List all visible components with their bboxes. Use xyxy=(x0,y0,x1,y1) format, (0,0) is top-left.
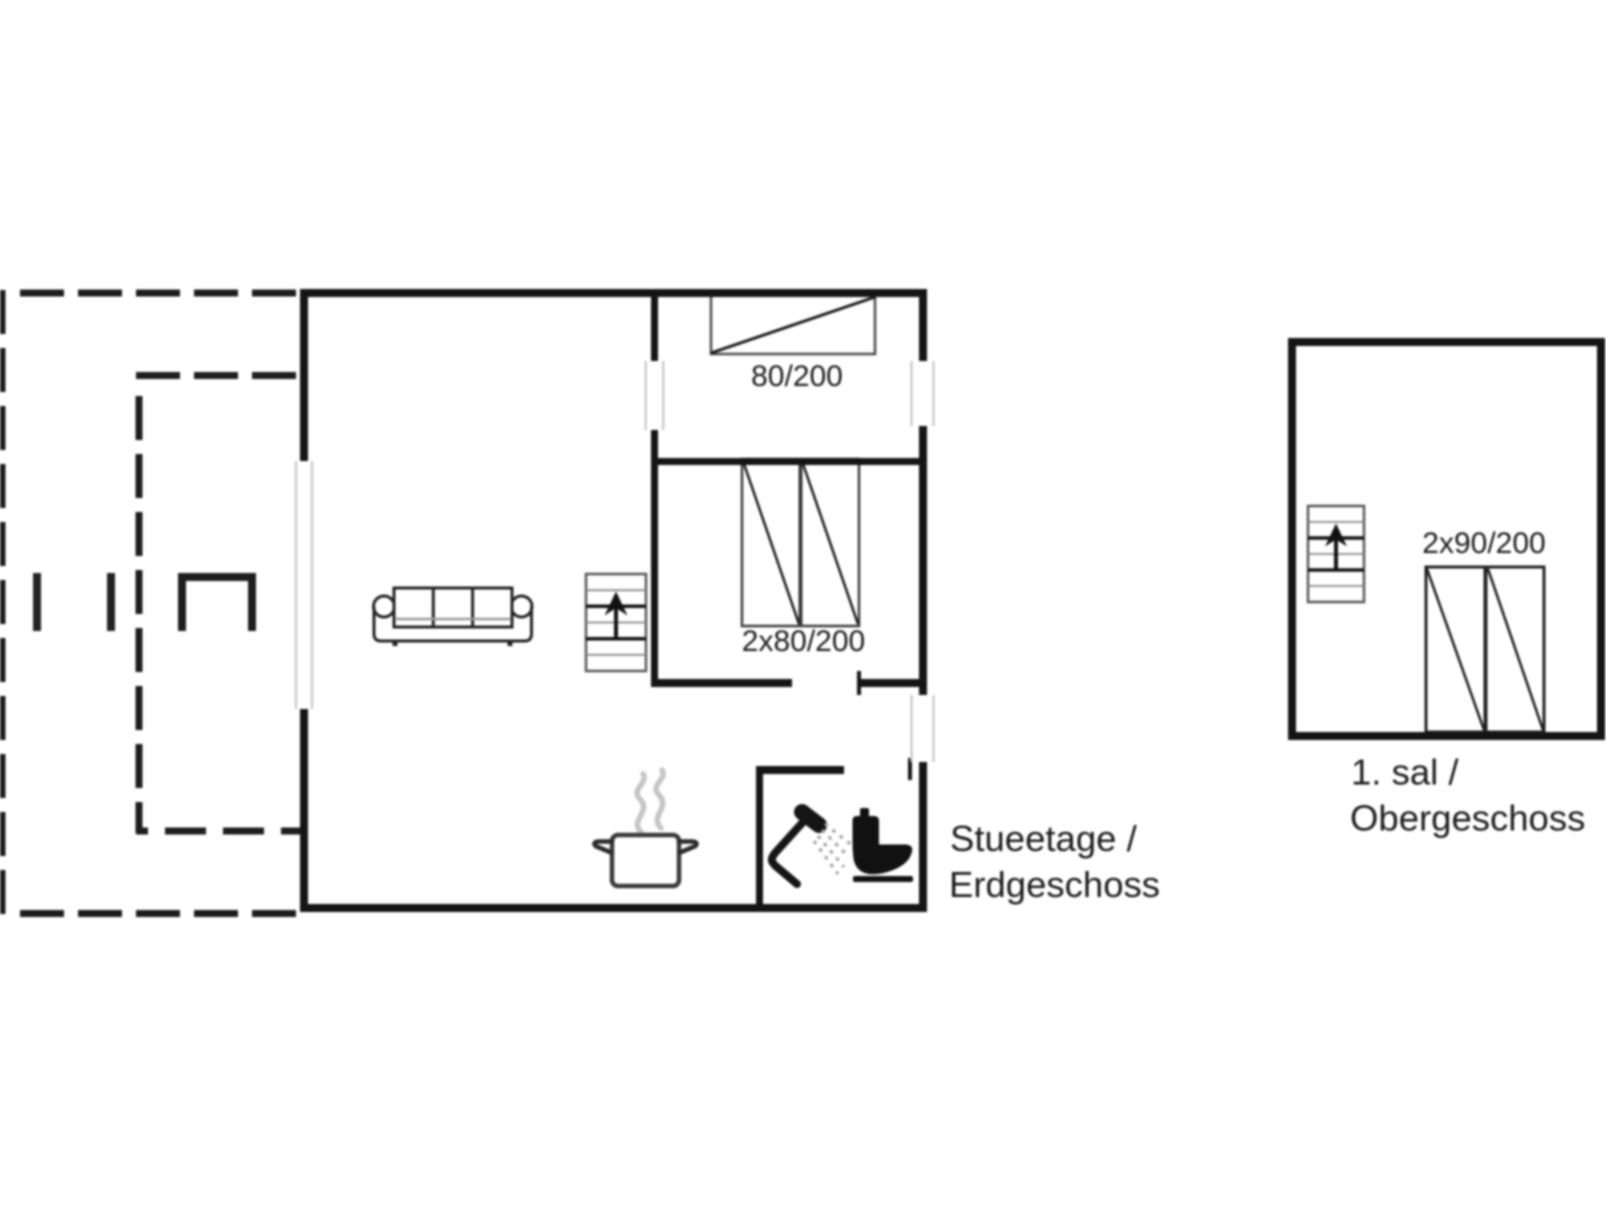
svg-text:Stueetage /: Stueetage / xyxy=(950,818,1138,859)
svg-text:2x90/200: 2x90/200 xyxy=(1422,527,1545,560)
svg-text:1. sal /: 1. sal / xyxy=(1351,752,1459,793)
svg-text:2x80/200: 2x80/200 xyxy=(742,625,865,658)
svg-text:Erdgeschoss: Erdgeschoss xyxy=(949,864,1160,905)
svg-text:80/200: 80/200 xyxy=(751,360,843,393)
svg-text:Obergeschoss: Obergeschoss xyxy=(1350,798,1585,839)
